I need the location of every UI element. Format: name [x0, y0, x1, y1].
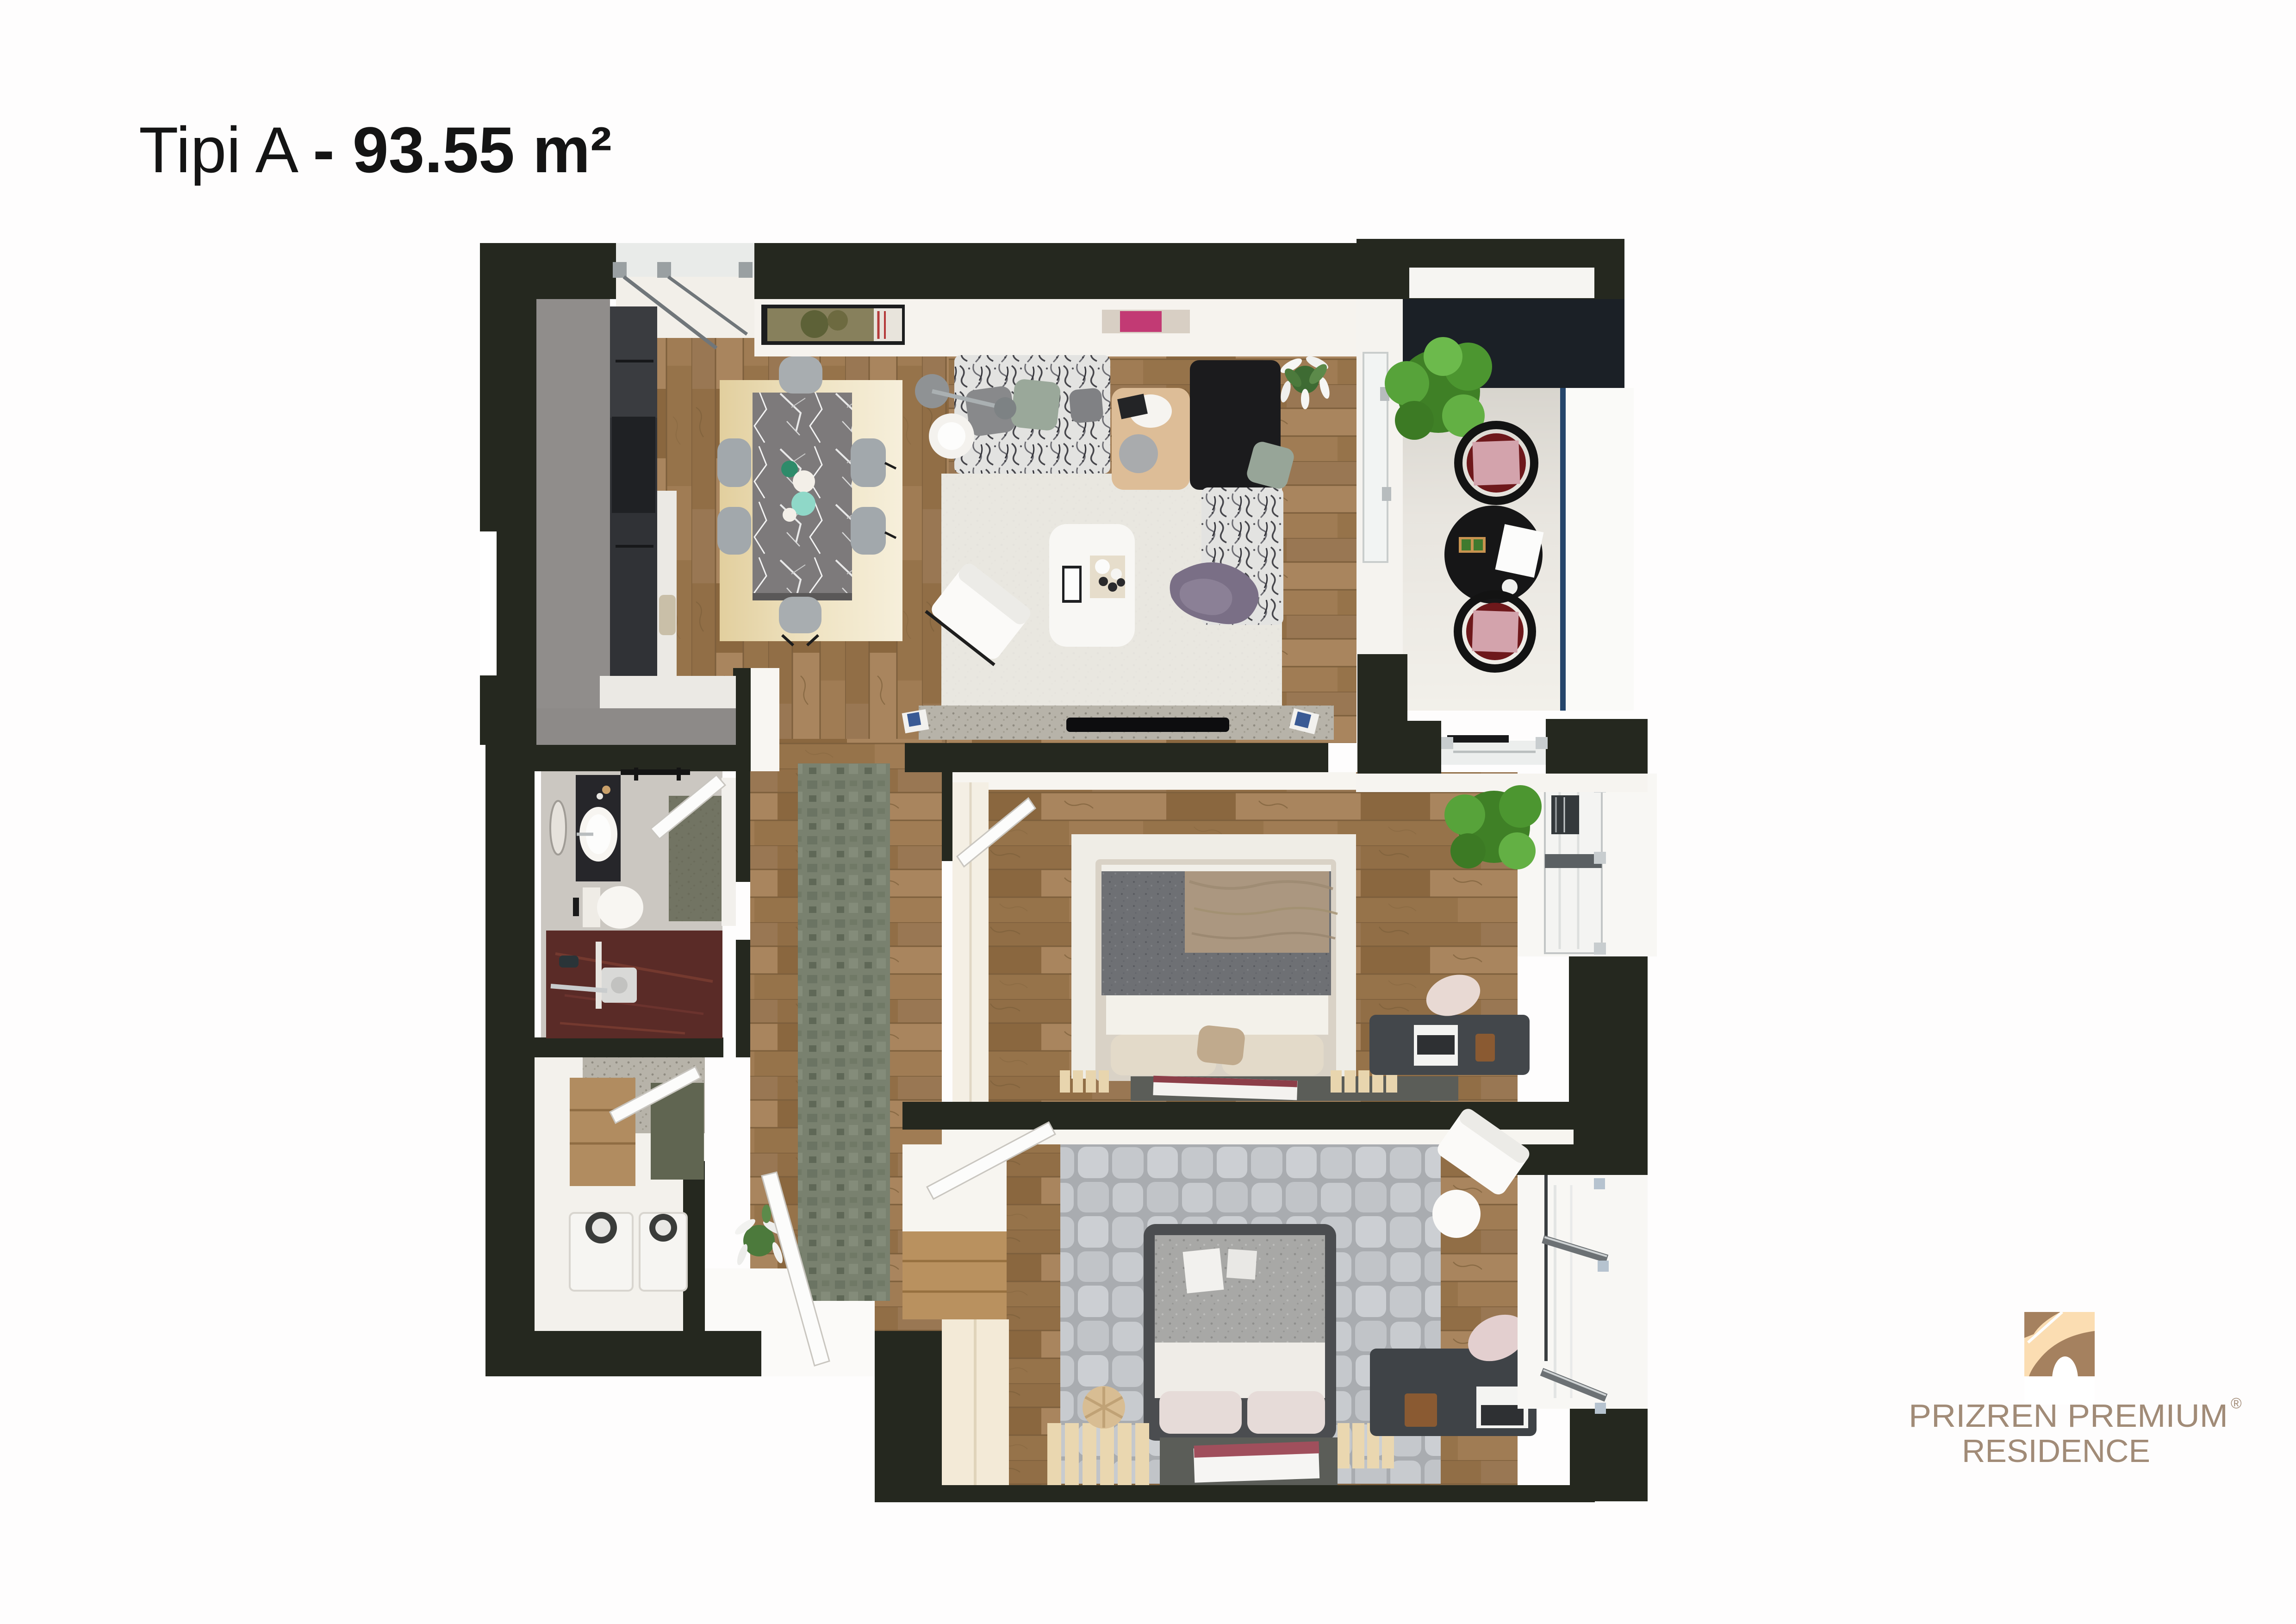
svg-text:RESIDENCE: RESIDENCE — [1962, 1433, 2150, 1469]
svg-text:Tipi A - 93.55 m²: Tipi A - 93.55 m² — [139, 113, 612, 186]
svg-text:PRIZREN PREMIUM: PRIZREN PREMIUM — [1909, 1398, 2228, 1434]
svg-text:®: ® — [2231, 1395, 2242, 1412]
